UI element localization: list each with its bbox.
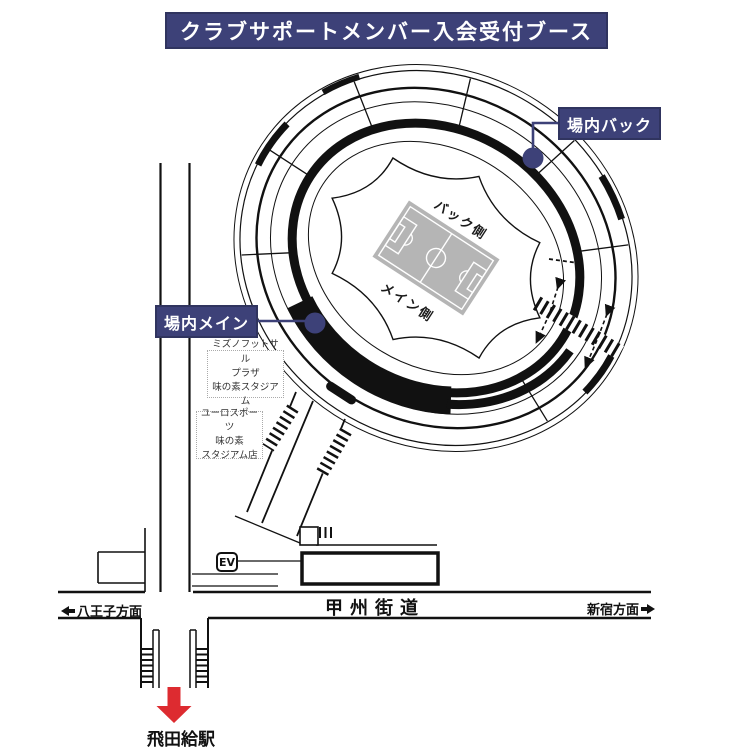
ns-road — [161, 163, 190, 592]
back-booth-dot — [523, 148, 544, 169]
tobitakyu-station-label: 飛田給駅 — [141, 725, 221, 750]
euro-line-3: スタジアム店 — [197, 449, 262, 463]
main-booth-dot — [305, 313, 326, 334]
euro-line-1: ユーロスポーツ — [197, 407, 262, 436]
mizuno-line-3: 味の素スタジアム — [208, 381, 283, 410]
page-title: クラブサポートメンバー入会受付ブース — [165, 12, 608, 49]
bus-bay — [98, 528, 145, 592]
hachioji-direction: 八王子方面 — [61, 601, 142, 620]
road-network — [58, 163, 651, 618]
elevator-badge: EV — [216, 552, 238, 572]
stair-landing — [300, 527, 318, 545]
mizuno-line-1: ミズノフットサル — [208, 338, 283, 367]
roadside-building — [302, 553, 438, 584]
station-entrance — [141, 618, 208, 688]
south-east-band — [447, 310, 570, 444]
left-arrow-icon — [61, 606, 75, 616]
sidewalk-lines — [192, 561, 302, 586]
mizuno-futsal-plaza-label: ミズノフットサル プラザ 味の素スタジアム — [207, 350, 284, 398]
hachioji-direction-text: 八王子方面 — [77, 601, 142, 620]
right-arrow-icon — [641, 604, 655, 614]
dashed-connector — [549, 259, 578, 263]
booth-back-label: 場内バック — [558, 107, 661, 140]
euro-sports-label: ユーロスポーツ 味の素 スタジアム店 — [196, 411, 263, 459]
access-map: バック側 メイン側 クラブサポートメンバー入会受付ブース 場内バック 場内メイン… — [0, 0, 750, 750]
mizuno-line-2: プラザ — [208, 367, 283, 381]
booth-pill — [324, 380, 357, 406]
booth-main-label: 場内メイン — [155, 305, 258, 338]
koshu-kaido-road-label: 甲州街道 — [300, 594, 450, 620]
walkway-join — [235, 516, 300, 543]
euro-line-2: 味の素 — [197, 435, 262, 449]
shinjuku-direction: 新宿方面 — [587, 599, 655, 618]
station-inner-walls — [153, 630, 196, 688]
shinjuku-direction-text: 新宿方面 — [587, 599, 639, 618]
station-direction-arrow — [157, 687, 192, 723]
